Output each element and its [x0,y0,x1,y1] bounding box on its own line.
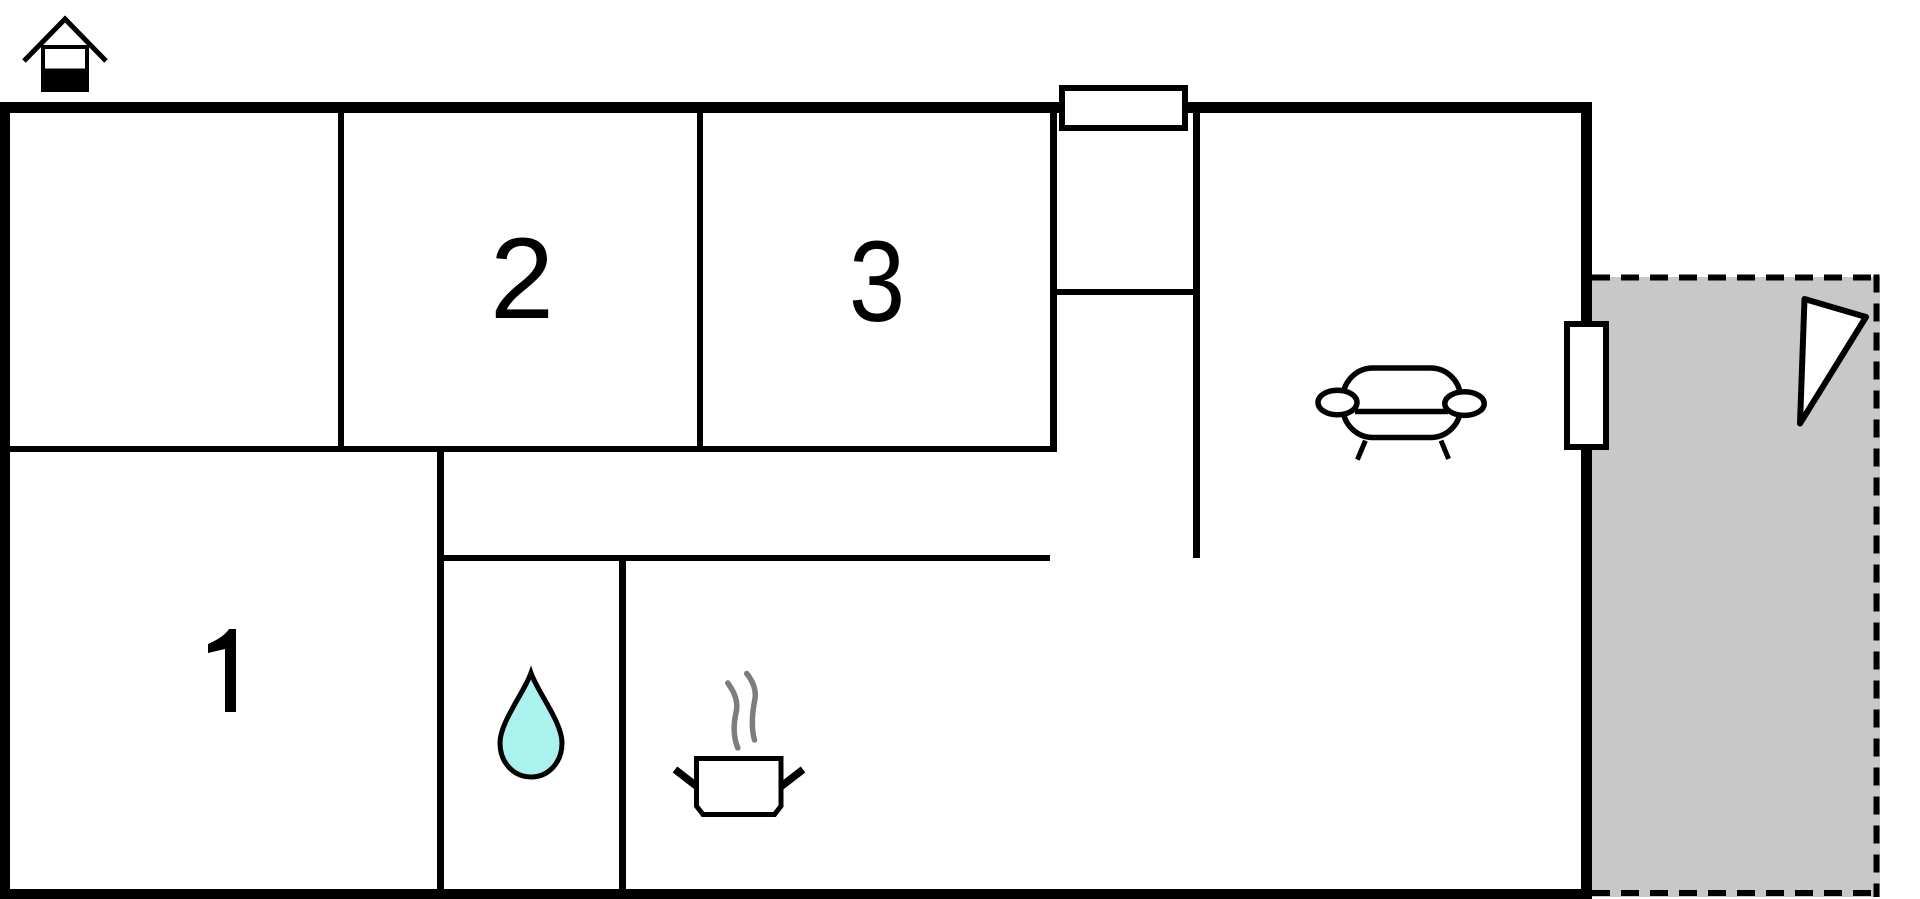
svg-text:3: 3 [849,217,905,345]
svg-text:2: 2 [490,215,554,343]
